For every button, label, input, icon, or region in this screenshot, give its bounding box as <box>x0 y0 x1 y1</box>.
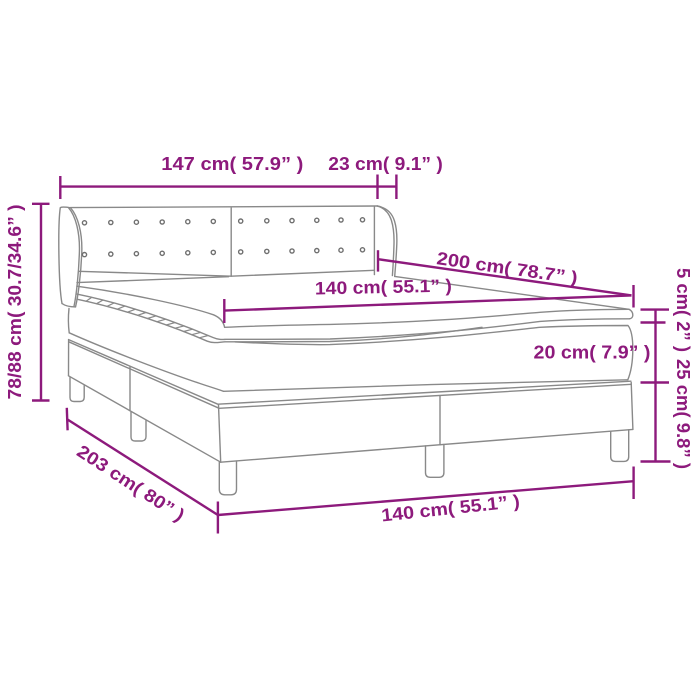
svg-text:23 cm( 9.1” ): 23 cm( 9.1” ) <box>328 154 443 174</box>
svg-text:140 cm( 55.1” ): 140 cm( 55.1” ) <box>315 276 452 299</box>
svg-text:25 cm( 9.8” ): 25 cm( 9.8” ) <box>673 359 693 469</box>
svg-text:78/88 cm( 30.7/34.6” ): 78/88 cm( 30.7/34.6” ) <box>5 204 25 399</box>
svg-text:5 cm( 2” ): 5 cm( 2” ) <box>673 268 693 352</box>
svg-text:20 cm( 7.9” ): 20 cm( 7.9” ) <box>534 342 651 362</box>
svg-text:147 cm( 57.9” ): 147 cm( 57.9” ) <box>161 154 303 174</box>
